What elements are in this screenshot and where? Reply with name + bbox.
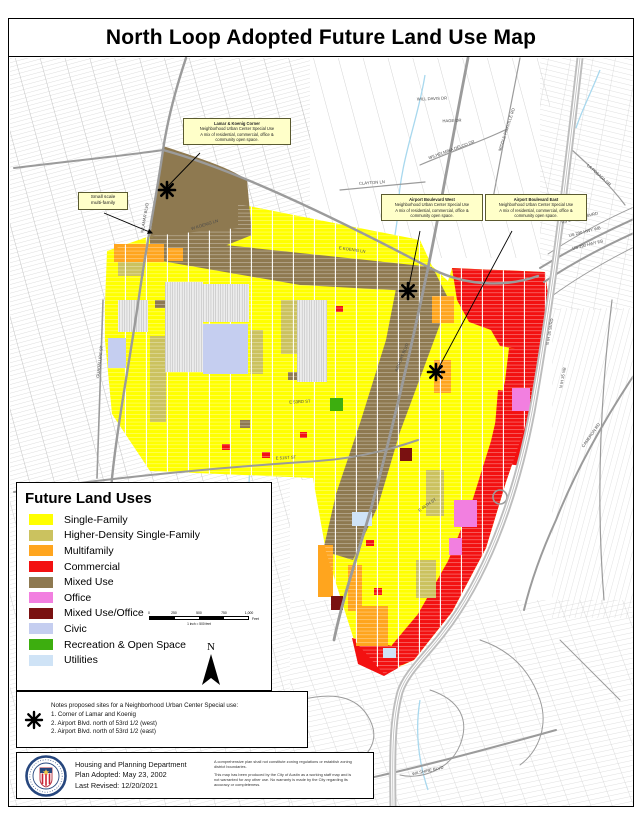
city-seal-icon xyxy=(17,755,75,797)
legend-swatch xyxy=(29,530,53,541)
footer-adopted: Plan Adopted: May 23, 2002 xyxy=(75,770,210,781)
footer-department: Housing and Planning Department xyxy=(75,760,210,771)
asterisk-icon xyxy=(17,709,51,731)
legend-label: Higher-Density Single-Family xyxy=(64,529,200,541)
disclaimer-paragraph: A comprehensive plan shall not constitut… xyxy=(214,760,354,770)
notes-item: 1. Corner of Lamar and Koenig xyxy=(51,711,238,720)
scale-tick: 250 xyxy=(171,611,177,615)
callout-line: Neighborhood Urban Center Special Use xyxy=(488,202,584,207)
callout-line: community open space. xyxy=(384,213,480,218)
legend-title: Future Land Uses xyxy=(25,490,271,507)
asterisk-marker xyxy=(400,283,416,299)
street-label: HAGE DR xyxy=(442,118,461,124)
legend-label: Civic xyxy=(64,623,87,635)
legend-item: Commercial xyxy=(29,559,271,575)
notes-text: Notes proposed sites for a Neighborhood … xyxy=(51,702,238,737)
street-label: WILL DAVIS DR xyxy=(417,95,447,101)
asterisk-marker xyxy=(159,182,175,198)
legend-item: Multifamily xyxy=(29,543,271,559)
scale-tick: 0 xyxy=(148,611,150,615)
legend-swatch xyxy=(29,655,53,666)
legend-rows: Single-FamilyHigher-Density Single-Famil… xyxy=(29,512,271,668)
callout-lamar-koenig: Lamar & Koenig CornerNeighborhood Urban … xyxy=(183,118,291,145)
legend-panel: Future Land Uses Single-FamilyHigher-Den… xyxy=(16,482,272,691)
legend-swatch xyxy=(29,639,53,650)
scale-tick: 1,000 xyxy=(245,611,254,615)
legend-item: Recreation & Open Space xyxy=(29,637,271,653)
legend-item: Utilities xyxy=(29,652,271,668)
callout-airport-east: Airport Boulevard EastNeighborhood Urban… xyxy=(485,194,587,221)
legend-label: Single-Family xyxy=(64,514,128,526)
scale-unit: Feet xyxy=(252,617,259,621)
north-label: N xyxy=(193,641,229,653)
scale-strip xyxy=(149,616,249,620)
footer-disclaimer: A comprehensive plan shall not constitut… xyxy=(214,760,354,790)
notes-item: 2. Airport Blvd. north of 53rd 1/2 (east… xyxy=(51,728,238,737)
legend-item: Higher-Density Single-Family xyxy=(29,528,271,544)
north-arrow: N xyxy=(193,641,229,692)
legend-label: Multifamily xyxy=(64,545,114,557)
map-page: W KOENIG LNE KOENIG LNN LAMAR BLVDAIRPOR… xyxy=(0,0,644,832)
legend-swatch xyxy=(29,623,53,634)
legend-item: Single-Family xyxy=(29,512,271,528)
legend-swatch xyxy=(29,514,53,525)
legend-swatch xyxy=(29,577,53,588)
legend-label: Office xyxy=(64,592,91,604)
notes-heading: Notes proposed sites for a Neighborhood … xyxy=(51,702,238,711)
legend-label: Mixed Use xyxy=(64,576,114,588)
callout-airport-west: Airport Boulevard WestNeighborhood Urban… xyxy=(381,194,483,221)
legend-swatch xyxy=(29,545,53,556)
landuse-recreation xyxy=(330,398,343,411)
legend-label: Recreation & Open Space xyxy=(64,639,186,651)
callout-line: multi-family xyxy=(81,201,125,207)
title-bar: North Loop Adopted Future Land Use Map xyxy=(8,18,634,57)
legend-swatch xyxy=(29,608,53,619)
legend-swatch xyxy=(29,592,53,603)
scale-ratio: 1 inch = 500 feet xyxy=(149,622,249,626)
disclaimer-paragraph: This map has been produced by the City o… xyxy=(214,773,354,788)
callout-small-multifamily: Small scalemulti-family xyxy=(78,192,128,210)
scale-tick: 750 xyxy=(221,611,227,615)
legend-label: Utilities xyxy=(64,654,98,666)
north-arrow-icon xyxy=(199,653,223,687)
asterisk-marker xyxy=(428,364,444,380)
callout-line: community open space. xyxy=(488,213,584,218)
footer-department-block: Housing and Planning Department Plan Ado… xyxy=(75,760,210,792)
footer-revised: Last Revised: 12/20/2021 xyxy=(75,781,210,792)
notes-panel: Notes proposed sites for a Neighborhood … xyxy=(16,691,308,748)
legend-label: Commercial xyxy=(64,561,120,573)
scale-bar: 02505007501,000 Feet 1 inch = 500 feet xyxy=(149,611,267,626)
legend-swatch xyxy=(29,561,53,572)
notes-item: 2. Airport Blvd. north of 53rd 1/2 (west… xyxy=(51,720,238,729)
legend-label: Mixed Use/Office xyxy=(64,607,144,619)
callout-line: Neighborhood Urban Center Special Use xyxy=(384,202,480,207)
legend-item: Mixed Use xyxy=(29,574,271,590)
footer-panel: Housing and Planning Department Plan Ado… xyxy=(16,752,374,799)
page-title: North Loop Adopted Future Land Use Map xyxy=(106,26,536,50)
callout-line: community open space. xyxy=(186,137,288,142)
legend-item: Office xyxy=(29,590,271,606)
callout-line: Neighborhood Urban Center Special Use xyxy=(186,126,288,131)
scale-tick: 500 xyxy=(196,611,202,615)
